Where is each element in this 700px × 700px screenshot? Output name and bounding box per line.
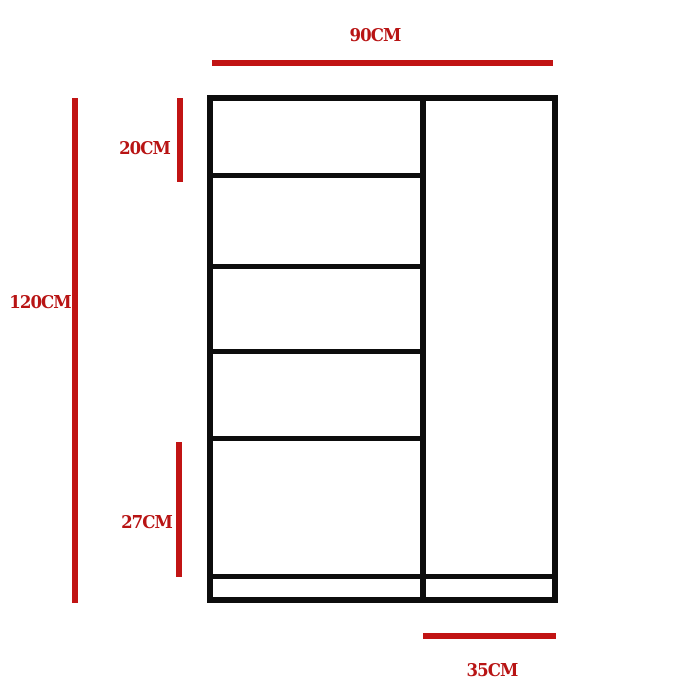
shelf-line-1 bbox=[213, 173, 420, 178]
height-dimension-line bbox=[72, 98, 78, 603]
width-dimension-line bbox=[212, 60, 553, 66]
bottom-compartment-dimension-label: 27CM bbox=[121, 512, 169, 533]
wardrobe-dimension-diagram: 90CM 120CM 20CM 27CM 35CM bbox=[0, 0, 700, 700]
shelf-line-4 bbox=[213, 436, 420, 441]
right-column-width-dimension-label: 35CM bbox=[466, 660, 518, 681]
right-column-dimension-line bbox=[423, 633, 556, 639]
shelf-line-3 bbox=[213, 349, 420, 354]
shelf-line-2 bbox=[213, 264, 420, 269]
base-plinth-line bbox=[213, 574, 552, 579]
height-dimension-label: 120CM bbox=[9, 292, 61, 313]
top-compartment-dimension-line bbox=[177, 98, 183, 182]
top-compartment-dimension-label: 20CM bbox=[119, 138, 167, 159]
bottom-compartment-dimension-line bbox=[176, 442, 182, 577]
cabinet-vertical-divider bbox=[420, 101, 426, 597]
width-dimension-label: 90CM bbox=[347, 25, 402, 46]
